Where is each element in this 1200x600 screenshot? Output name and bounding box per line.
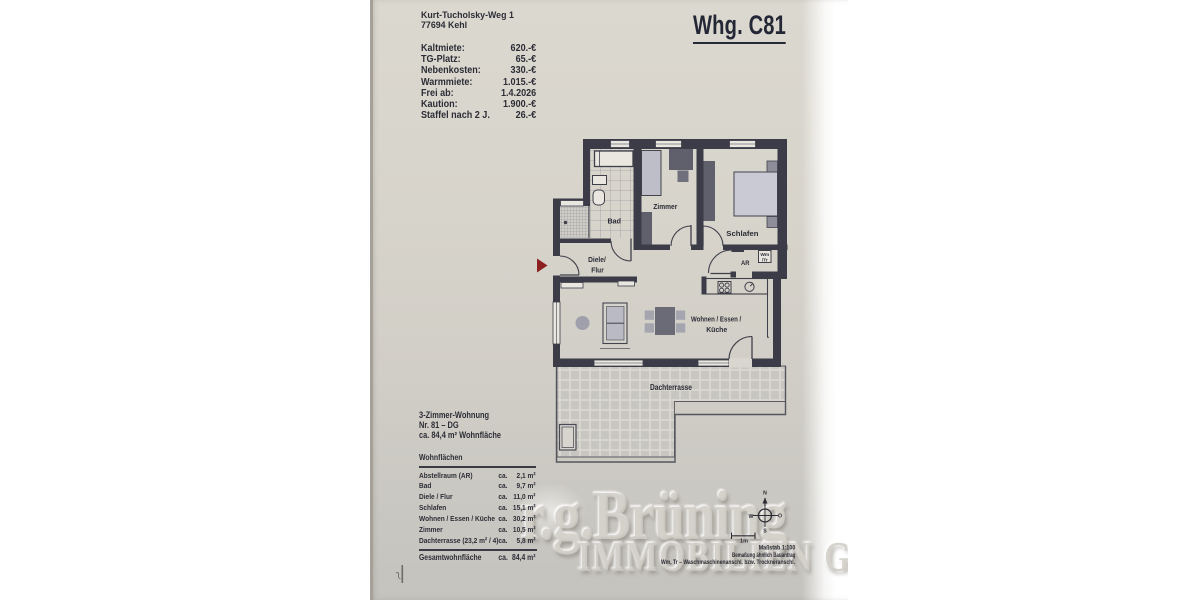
svg-text:Dachterrasse: Dachterrasse [650,383,692,392]
svg-text:N: N [763,491,767,497]
svg-text:O: O [778,514,782,520]
svg-text:Diele/: Diele/ [588,257,606,264]
svg-text:Maßstab 1:100: Maßstab 1:100 [759,545,796,551]
svg-text:AR: AR [741,260,750,267]
svg-text:Zimmer: Zimmer [653,202,677,211]
svg-text:Schlafen: Schlafen [726,229,759,238]
svg-text:Wm, Tr – Waschmaschinenanschl.: Wm, Tr – Waschmaschinenanschl. bzw. Troc… [661,560,795,566]
svg-text:S: S [763,529,767,535]
svg-text:/Tr: /Tr [762,257,768,263]
svg-text:Wohnen / Essen /: Wohnen / Essen / [691,315,742,324]
svg-text:Küche: Küche [706,325,727,334]
svg-text:Bemaßung ähnlich Bauantrag: Bemaßung ähnlich Bauantrag [732,553,796,559]
svg-text:W: W [749,514,754,520]
svg-text:Wm: Wm [760,252,769,258]
svg-text:Bad: Bad [608,217,622,226]
svg-text:Flur: Flur [591,268,604,275]
svg-text:1m: 1m [740,539,748,545]
